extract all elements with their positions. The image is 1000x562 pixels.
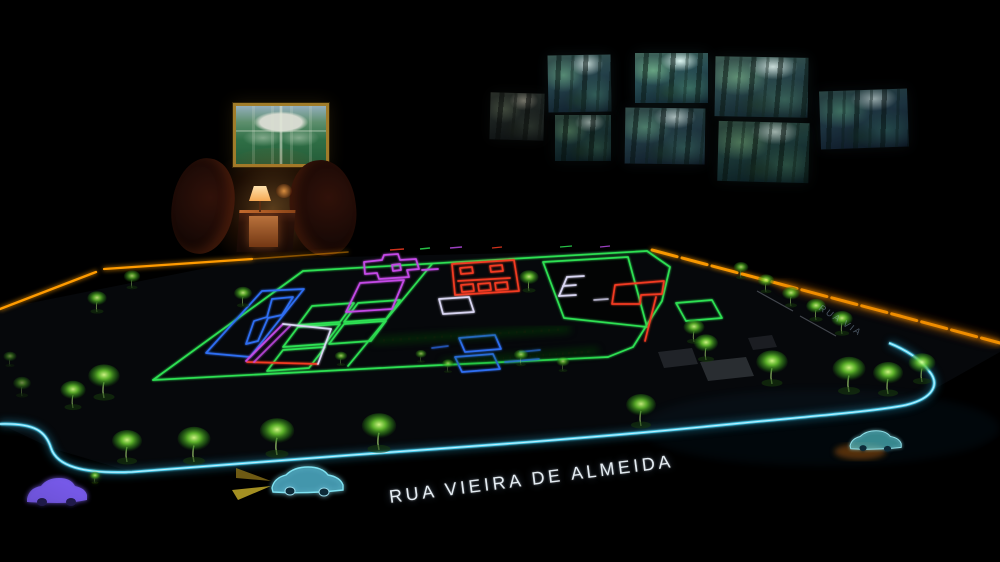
car-purple bbox=[27, 472, 100, 506]
car-cyan-front bbox=[232, 467, 343, 500]
showroom-scene: RUA VIEIRA DE ALMEIDA RUA VIA bbox=[0, 0, 1000, 562]
back-street-lights bbox=[390, 246, 610, 250]
